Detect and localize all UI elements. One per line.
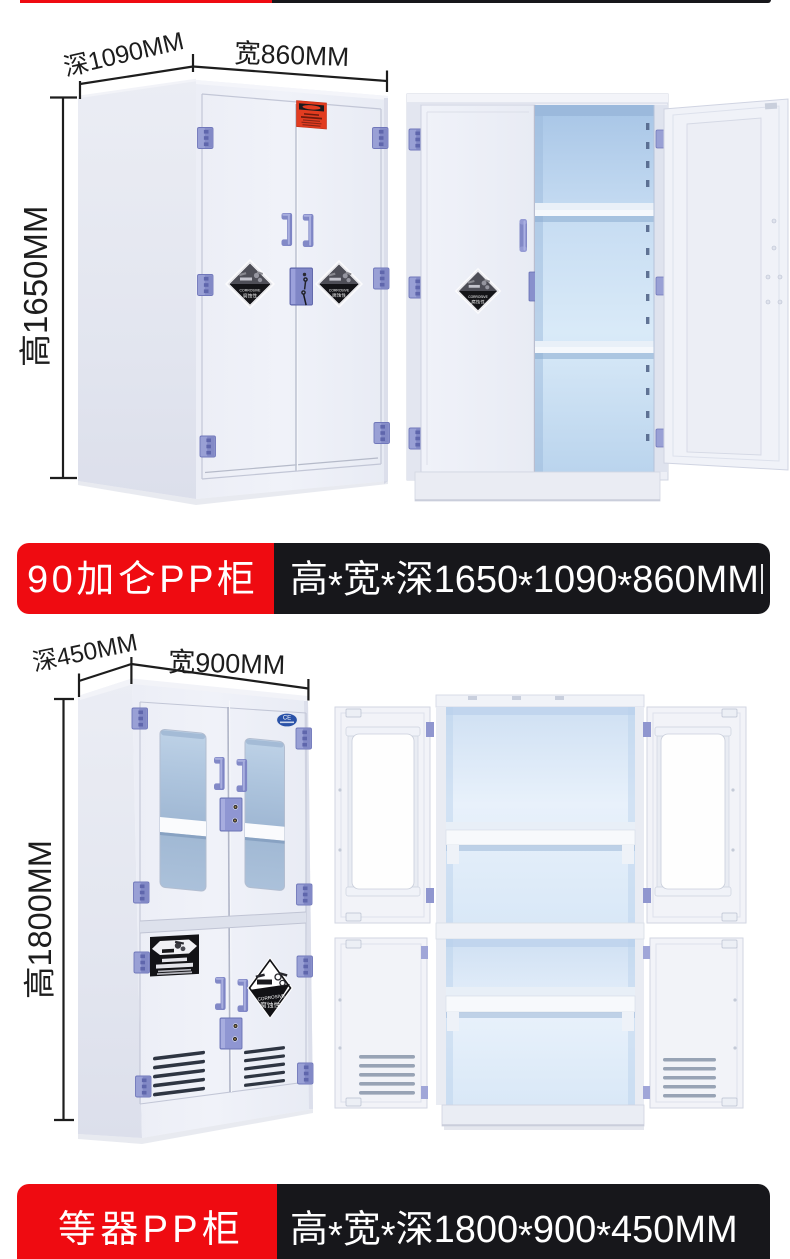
svg-text:CE: CE [283,716,291,722]
svg-text:*: * [518,565,533,607]
svg-text:PP: PP [143,1209,202,1251]
svg-text:*: * [596,1215,611,1257]
svg-text:450MM: 450MM [611,1209,738,1251]
svg-text:1090: 1090 [533,559,618,601]
svg-text:860MM: 860MM [260,39,349,72]
svg-text:1650MM: 1650MM [17,206,54,334]
svg-text:PP: PP [159,559,217,601]
svg-text:860MM: 860MM [632,559,759,601]
svg-text:1800: 1800 [434,1209,519,1251]
svg-text:*: * [328,1215,343,1257]
svg-text:1650: 1650 [434,559,519,601]
svg-text:*: * [328,565,343,607]
svg-text:*: * [617,565,632,607]
svg-text:90: 90 [27,559,76,601]
svg-text:*: * [518,1215,533,1257]
svg-text:*: * [381,1215,396,1257]
svg-text:1800MM: 1800MM [22,840,58,966]
svg-text:900MM: 900MM [195,648,286,680]
svg-text:*: * [381,565,396,607]
svg-text:900: 900 [533,1209,596,1251]
